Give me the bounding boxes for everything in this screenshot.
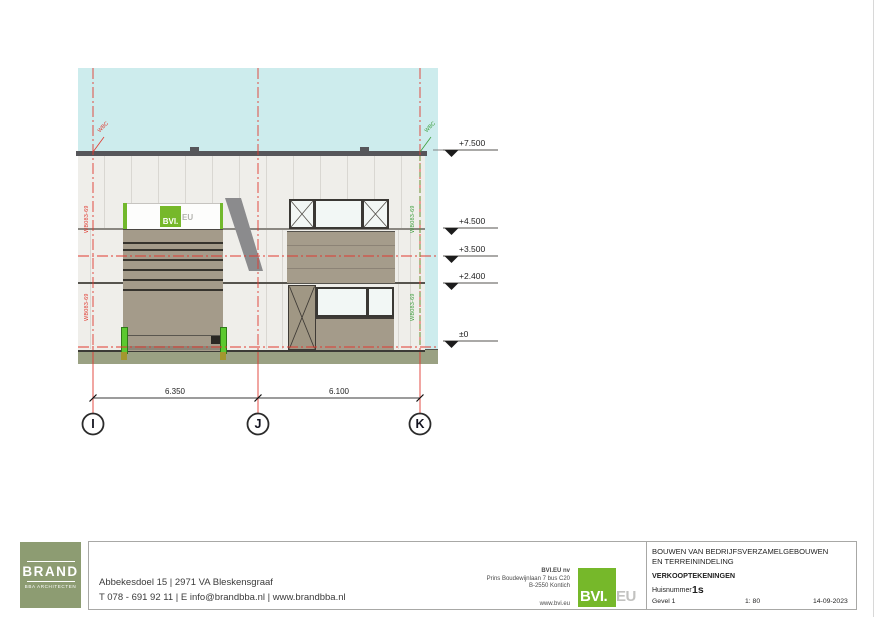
drawing-sheet: BVI. EU	[0, 0, 877, 617]
bvi-logo-facade-text: BVI.	[163, 217, 179, 227]
bvi-company-web: www.bvi.eu	[420, 601, 570, 609]
cladding-panel-lower	[316, 317, 394, 350]
bollard-left-base	[121, 352, 127, 360]
project-scale: 1: 80	[745, 598, 760, 605]
bvi-company-block: BVI.EU nv Prins Boudewijnlaan 7 bus C20 …	[420, 568, 570, 608]
wall-code-right-lower: WB083-69	[410, 285, 416, 321]
level-label-0: ±0	[459, 329, 468, 339]
wall-joint	[282, 230, 283, 349]
window-mullion	[361, 201, 364, 227]
door-rib	[123, 259, 223, 261]
cladding-seam	[287, 268, 395, 269]
roof-vent	[190, 147, 199, 151]
brand-logo-rule-bottom	[27, 581, 75, 582]
wall-code-left-upper: WB083-69	[84, 197, 90, 233]
project-huisnummer-label: Huisnummer	[652, 587, 692, 594]
door-rib	[123, 289, 223, 291]
door-bottom-band	[123, 346, 223, 350]
bvi-logo-titleblock-eu: EU	[616, 588, 636, 605]
cladding-band-mid	[287, 231, 395, 283]
window-band-upper	[289, 199, 389, 229]
grid-bubble-i: I	[82, 417, 104, 431]
project-title-line1: BOUWEN VAN BEDRIJFSVERZAMELGEBOUWEN	[652, 547, 828, 556]
level-label-3500: +3.500	[459, 244, 485, 254]
window-mullion	[366, 289, 369, 315]
bollard-right	[220, 327, 227, 354]
window-mullion	[313, 201, 316, 227]
door-rib	[123, 242, 223, 244]
bvi-logo-facade: BVI.	[160, 206, 181, 227]
bvi-company-addr1: Prins Boudewijnlaan 7 bus C20	[420, 576, 570, 584]
entrance-door	[288, 285, 316, 350]
brand-logo-sub: BBA ARCHITECTEN	[25, 584, 77, 589]
dimension-ij: 6.350	[153, 387, 197, 396]
cladding-seam	[287, 245, 395, 246]
door-seam	[123, 335, 223, 336]
door-rib	[123, 269, 223, 271]
project-date: 14-09-2023	[813, 598, 848, 605]
roof-vent	[360, 147, 369, 151]
bvi-logo-titleblock-bvi: BVI.	[580, 588, 607, 605]
wall-joint	[398, 230, 399, 349]
level-triangles	[445, 150, 459, 348]
level-label-2400: +2.400	[459, 271, 485, 281]
brand-logo: BRAND BBA ARCHITECTEN	[20, 542, 81, 608]
level-label-7500: +7.500	[459, 138, 485, 148]
project-sheet-name: Gevel 1	[652, 598, 675, 605]
grid-bubble-k: K	[409, 417, 431, 431]
door-rib	[123, 279, 223, 281]
level-label-4500: +4.500	[459, 216, 485, 226]
titleblock-divider	[646, 541, 647, 610]
window-band-lower	[316, 287, 394, 317]
architect-address-line1: Abbekesdoel 15 | 2971 VA Bleskensgraaf	[99, 577, 273, 588]
architect-address-line2: T 078 - 691 92 11 | E info@brandbba.nl |…	[99, 592, 346, 603]
bollard-right-base	[220, 352, 226, 360]
project-huisnummer: 1s	[692, 584, 704, 596]
project-title-line2: EN TERREININDELING	[652, 557, 734, 566]
wall-code-left-lower: WB083-69	[84, 285, 90, 321]
signboard-green-strip	[220, 203, 224, 229]
page-edge-line	[873, 0, 874, 617]
project-doc-type: VERKOOPTEKENINGEN	[652, 571, 735, 580]
wall-joint	[90, 230, 91, 349]
bvi-logo-facade-eu: EU	[182, 213, 193, 222]
signboard-green-strip	[123, 203, 127, 229]
brand-logo-name: BRAND	[22, 564, 78, 579]
brand-logo-rule-top	[27, 561, 75, 562]
wall-code-right-upper: WB083-69	[410, 197, 416, 233]
grid-bubble-j: J	[247, 417, 269, 431]
dimension-jk: 6.100	[317, 387, 361, 396]
door-rib	[123, 249, 223, 251]
bollard-left	[121, 327, 128, 354]
wall-joint	[266, 230, 267, 349]
bvi-company-name: BVI.EU nv	[420, 568, 570, 576]
bvi-company-addr2: B-2550 Kontich	[420, 583, 570, 591]
dimension-ticks	[90, 395, 424, 402]
